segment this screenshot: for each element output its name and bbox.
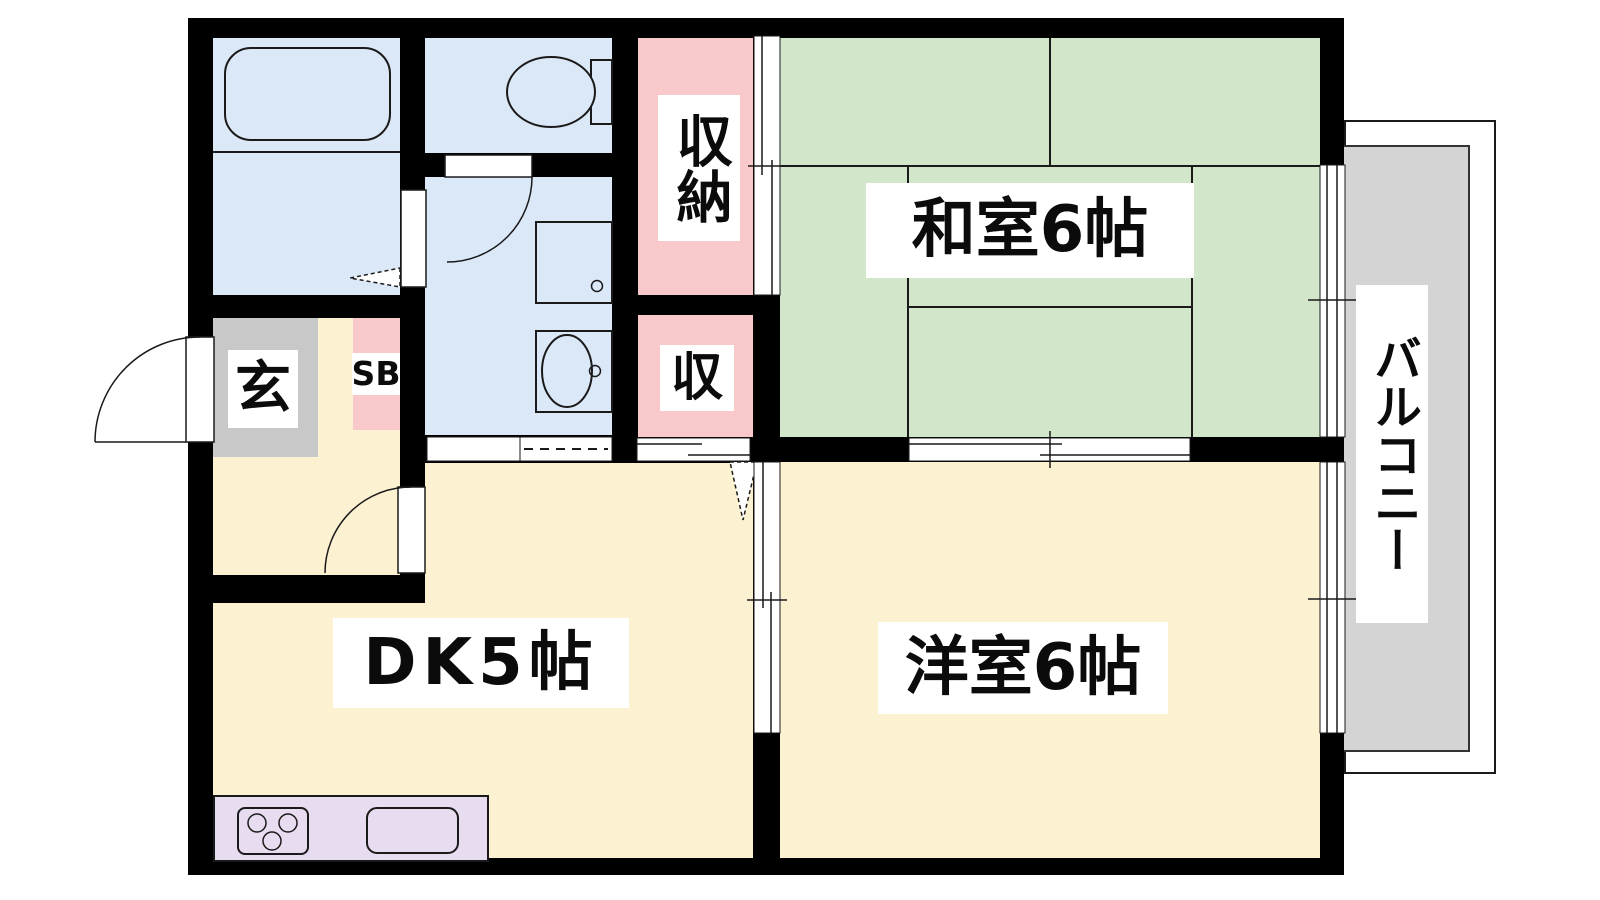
- label-dk: DK5帖: [333, 618, 629, 708]
- dk-youshitsu-sliding-door: [747, 462, 787, 733]
- bathroom-folding-door: [350, 268, 400, 287]
- label-entrance: 玄: [228, 350, 298, 428]
- floor-plan-canvas: 和室6帖 洋室6帖 DK5帖 バルコニー 収納 収 玄 SB: [0, 0, 1600, 900]
- label-youshitsu: 洋室6帖: [878, 622, 1168, 714]
- washroom-accordion-frame: [520, 437, 612, 461]
- youshitsu-balcony-window: [1308, 462, 1356, 733]
- washitsu-balcony-window: [1308, 165, 1356, 437]
- wash-basin: [536, 331, 612, 412]
- label-washitsu: 和室6帖: [866, 183, 1194, 278]
- washitsu-youshitsu-sliding-door: [909, 431, 1190, 468]
- kitchen-sink: [367, 808, 458, 853]
- closet-main-sliding-door: [748, 36, 786, 295]
- toilet-door-arc: [447, 177, 532, 262]
- toilet-door-opening: [445, 155, 532, 177]
- hall-dk-door-leaf: [398, 487, 425, 573]
- bathtub: [225, 48, 390, 140]
- washing-machine-pan: [536, 222, 612, 303]
- toilet: [507, 57, 612, 127]
- closet-folding-door-mark: [730, 462, 757, 520]
- label-balcony: バルコニー: [1356, 285, 1428, 623]
- entrance-door-leaf: [186, 337, 214, 442]
- bathroom-door-opening: [401, 190, 426, 287]
- entrance-door-arc: [95, 337, 200, 442]
- gas-stove: [238, 808, 308, 854]
- washroom-door-panel: [427, 437, 520, 461]
- label-closet-main: 収納: [658, 95, 740, 241]
- label-closet-small: 収: [660, 345, 734, 411]
- closet-small-sliding-door: [637, 438, 750, 461]
- label-shoebox: SB: [352, 353, 400, 395]
